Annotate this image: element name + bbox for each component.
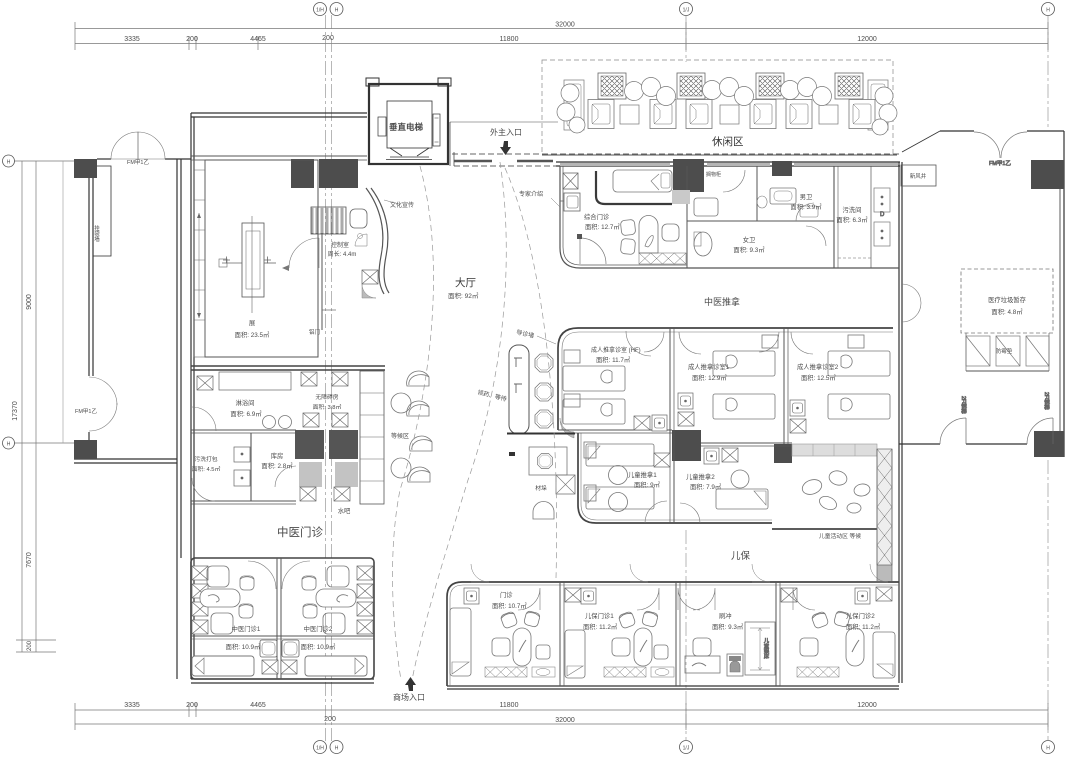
svg-text:搁物柜: 搁物柜 <box>706 171 721 178</box>
svg-text:污洗间: 污洗间 <box>843 205 862 214</box>
svg-text:成人推拿诊室 (HF): 成人推拿诊室 (HF) <box>591 346 641 354</box>
svg-text:H: H <box>7 160 11 166</box>
svg-text:H: H <box>7 442 11 448</box>
svg-text:H: H <box>335 8 339 14</box>
svg-text:面积: 11.2㎡: 面积: 11.2㎡ <box>846 622 881 631</box>
svg-text:12000: 12000 <box>857 702 877 709</box>
svg-text:中医门诊1: 中医门诊1 <box>232 624 261 633</box>
svg-text:中医门诊2: 中医门诊2 <box>304 624 333 633</box>
svg-text:淋浴间: 淋浴间 <box>236 398 255 407</box>
svg-text:面积: 2.8㎡: 面积: 2.8㎡ <box>261 461 293 470</box>
svg-text:FM甲1乙: FM甲1乙 <box>127 159 150 166</box>
svg-text:面积: 9.3㎡: 面积: 9.3㎡ <box>712 622 744 631</box>
svg-text:面积: 92㎡: 面积: 92㎡ <box>448 291 479 300</box>
svg-text:面积: 12.9㎡: 面积: 12.9㎡ <box>692 373 727 382</box>
svg-text:H: H <box>1046 746 1050 752</box>
svg-text:FM甲1乙: FM甲1乙 <box>75 408 98 415</box>
svg-text:2F候梯: 2F候梯 <box>1043 392 1050 411</box>
svg-text:垂直电梯: 垂直电梯 <box>389 122 424 132</box>
svg-text:周长: 4.4m: 周长: 4.4m <box>328 250 357 258</box>
svg-text:1/J: 1/J <box>683 746 690 752</box>
svg-text:200: 200 <box>186 36 198 43</box>
svg-text:儿童推拿1: 儿童推拿1 <box>628 470 657 479</box>
svg-text:挂袋墙: 挂袋墙 <box>93 224 100 243</box>
svg-text:1/H: 1/H <box>316 8 324 14</box>
svg-text:1/H: 1/H <box>316 746 324 752</box>
svg-text:32000: 32000 <box>555 22 575 29</box>
svg-text:新风井: 新风井 <box>910 172 927 180</box>
svg-text:污洗打包: 污洗打包 <box>194 455 217 463</box>
svg-text:H: H <box>1046 8 1050 14</box>
svg-text:7670: 7670 <box>26 552 33 568</box>
svg-text:成人推拿诊室2: 成人推拿诊室2 <box>797 362 839 371</box>
svg-text:面积: 3.9㎡: 面积: 3.9㎡ <box>790 202 822 211</box>
svg-text:商场入口: 商场入口 <box>393 692 425 702</box>
svg-text:H: H <box>335 746 339 752</box>
svg-text:儿保: 儿保 <box>731 550 751 562</box>
svg-text:面积: 12.7㎡: 面积: 12.7㎡ <box>585 222 620 231</box>
svg-text:9000: 9000 <box>26 294 33 310</box>
svg-text:医疗垃圾暂存: 医疗垃圾暂存 <box>988 295 1026 304</box>
svg-text:儿保门诊1: 儿保门诊1 <box>585 611 614 620</box>
svg-text:2F候梯: 2F候梯 <box>960 396 967 415</box>
svg-text:面积: 7.9㎡: 面积: 7.9㎡ <box>690 482 722 491</box>
svg-text:1/J: 1/J <box>683 8 690 14</box>
svg-text:儿童活动区 等候: 儿童活动区 等候 <box>819 532 861 540</box>
svg-text:专家介绍: 专家介绍 <box>519 190 543 198</box>
svg-text:铝门: 铝门 <box>309 328 320 336</box>
svg-text:面积: 23.5㎡: 面积: 23.5㎡ <box>235 330 270 339</box>
svg-text:面积: 4.8㎡: 面积: 4.8㎡ <box>991 307 1023 316</box>
svg-text:17370: 17370 <box>12 401 19 421</box>
svg-text:面积: 10.9㎡: 面积: 10.9㎡ <box>301 642 336 651</box>
svg-text:外主入口: 外主入口 <box>490 127 522 137</box>
svg-text:面积: 11.7㎡: 面积: 11.7㎡ <box>596 355 631 364</box>
svg-text:休闲区: 休闲区 <box>712 135 744 148</box>
svg-text:中医推拿: 中医推拿 <box>704 296 740 307</box>
svg-text:水吧: 水吧 <box>338 506 351 515</box>
svg-text:D: D <box>880 212 885 218</box>
svg-text:综合门诊: 综合门诊 <box>584 212 610 221</box>
svg-text:200: 200 <box>27 640 33 651</box>
svg-text:3335: 3335 <box>124 36 140 43</box>
svg-text:门诊: 门诊 <box>500 590 513 599</box>
svg-text:200: 200 <box>186 702 198 709</box>
svg-text:儿保门诊2: 儿保门诊2 <box>846 611 875 620</box>
svg-text:11800: 11800 <box>500 36 519 43</box>
svg-text:成人推拿诊室1: 成人推拿诊室1 <box>688 362 730 371</box>
svg-text:面积: 10.9㎡: 面积: 10.9㎡ <box>226 642 261 651</box>
svg-text:4465: 4465 <box>250 36 266 43</box>
svg-text:文化宣传: 文化宣传 <box>390 201 414 209</box>
svg-text:面积: 10.7㎡: 面积: 10.7㎡ <box>492 601 527 610</box>
svg-text:库房: 库房 <box>271 451 284 460</box>
svg-text:12000: 12000 <box>857 36 877 43</box>
svg-text:材垛: 材垛 <box>535 484 547 492</box>
svg-text:3335: 3335 <box>124 702 140 709</box>
svg-text:儿童娱床: 儿童娱床 <box>763 638 769 661</box>
svg-text:面积: 6.3㎡: 面积: 6.3㎡ <box>836 215 868 224</box>
svg-text:防霉垫: 防霉垫 <box>996 347 1013 355</box>
svg-text:男卫: 男卫 <box>800 193 813 201</box>
svg-text:面积: 9㎡: 面积: 9㎡ <box>634 480 661 489</box>
svg-text:中医门诊: 中医门诊 <box>277 525 323 539</box>
svg-text:200: 200 <box>324 716 336 723</box>
svg-text:等候区: 等候区 <box>391 432 409 440</box>
svg-text:32000: 32000 <box>555 717 575 724</box>
svg-text:面积: 9.3㎡: 面积: 9.3㎡ <box>733 245 765 254</box>
svg-text:面积: 11.2㎡: 面积: 11.2㎡ <box>583 622 618 631</box>
svg-text:4465: 4465 <box>250 702 266 709</box>
svg-text:面积: 4.5㎡: 面积: 4.5㎡ <box>192 465 221 473</box>
svg-text:展: 展 <box>249 319 256 327</box>
svg-text:面积: 6.9㎡: 面积: 6.9㎡ <box>230 409 262 418</box>
svg-text:FM甲1乙: FM甲1乙 <box>989 160 1012 167</box>
svg-text:儿童推拿2: 儿童推拿2 <box>686 472 715 481</box>
svg-text:女卫: 女卫 <box>743 235 756 244</box>
svg-text:11800: 11800 <box>500 702 519 709</box>
svg-text:大厅: 大厅 <box>455 276 476 289</box>
svg-text:刷冲: 刷冲 <box>719 611 732 620</box>
svg-text:控制室: 控制室 <box>331 241 349 249</box>
svg-text:无障碍房: 无障碍房 <box>315 393 338 401</box>
svg-text:面积: 12.5㎡: 面积: 12.5㎡ <box>801 373 836 382</box>
svg-text:200: 200 <box>322 35 334 42</box>
svg-text:面积: 3.8㎡: 面积: 3.8㎡ <box>313 403 342 411</box>
